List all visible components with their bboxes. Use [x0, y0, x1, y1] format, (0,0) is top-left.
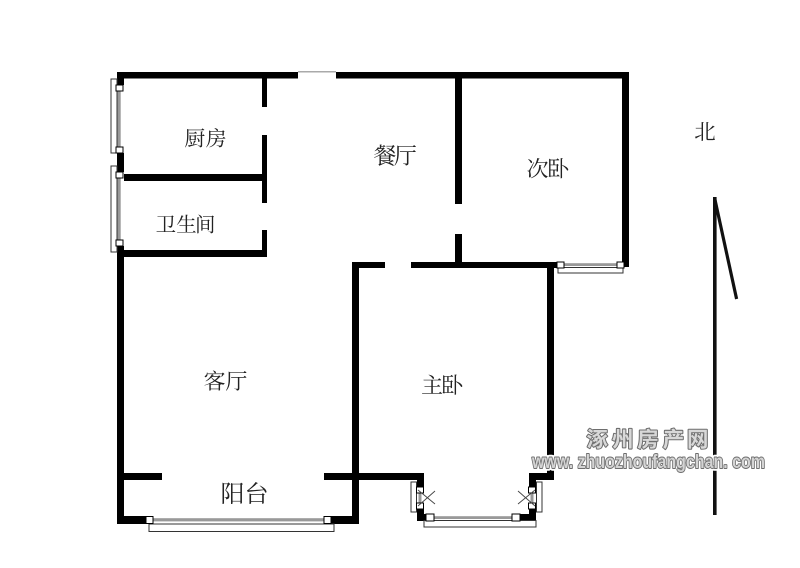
- svg-text:www. zhuozhoufangchan. com: www. zhuozhoufangchan. com: [531, 451, 765, 473]
